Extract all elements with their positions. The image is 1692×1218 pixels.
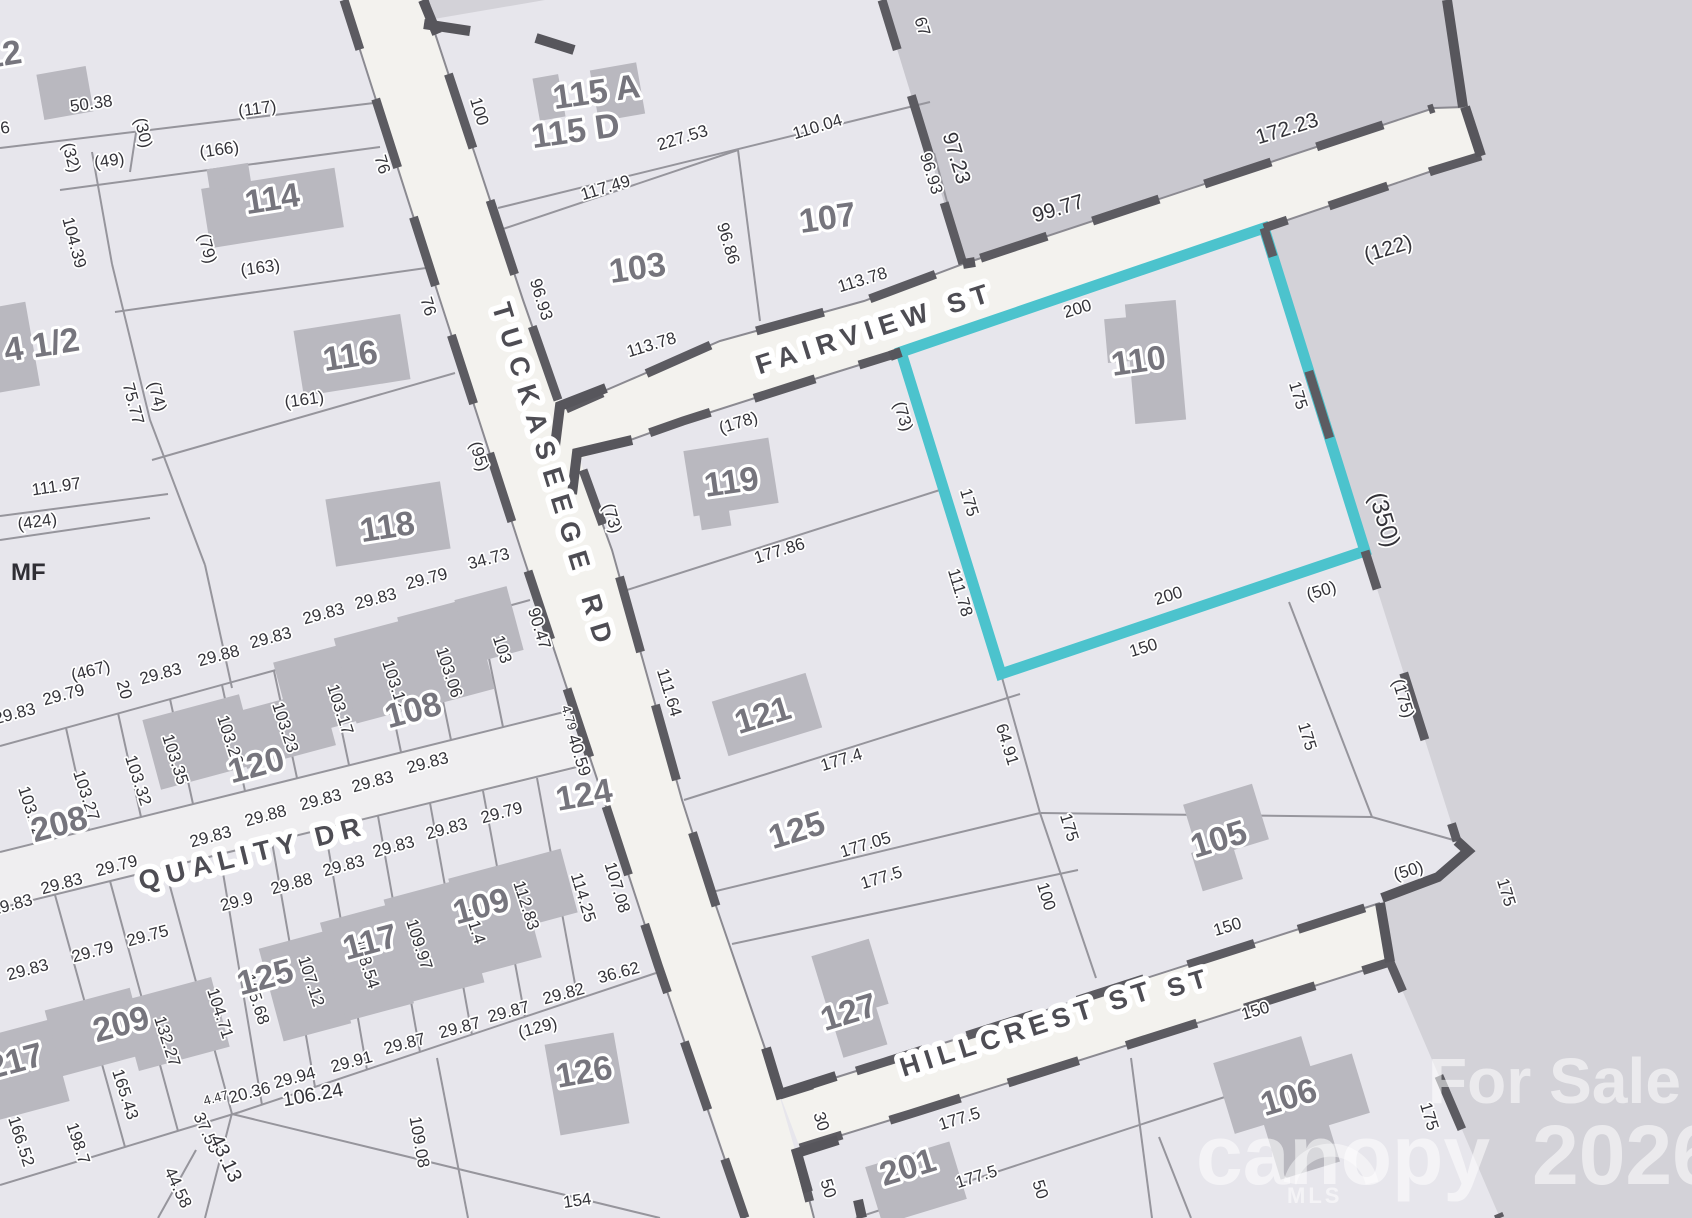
svg-text:103: 103 <box>607 245 668 291</box>
svg-text:MLS: MLS <box>1287 1183 1342 1208</box>
svg-text:2026: 2026 <box>1532 1108 1692 1202</box>
svg-text:107: 107 <box>797 195 858 241</box>
svg-text:119: 119 <box>702 459 762 504</box>
svg-text:For Sale: For Sale <box>1428 1045 1683 1117</box>
svg-text:MF: MF <box>11 559 46 586</box>
svg-text:154: 154 <box>562 1189 593 1212</box>
svg-text:110: 110 <box>1109 338 1169 383</box>
